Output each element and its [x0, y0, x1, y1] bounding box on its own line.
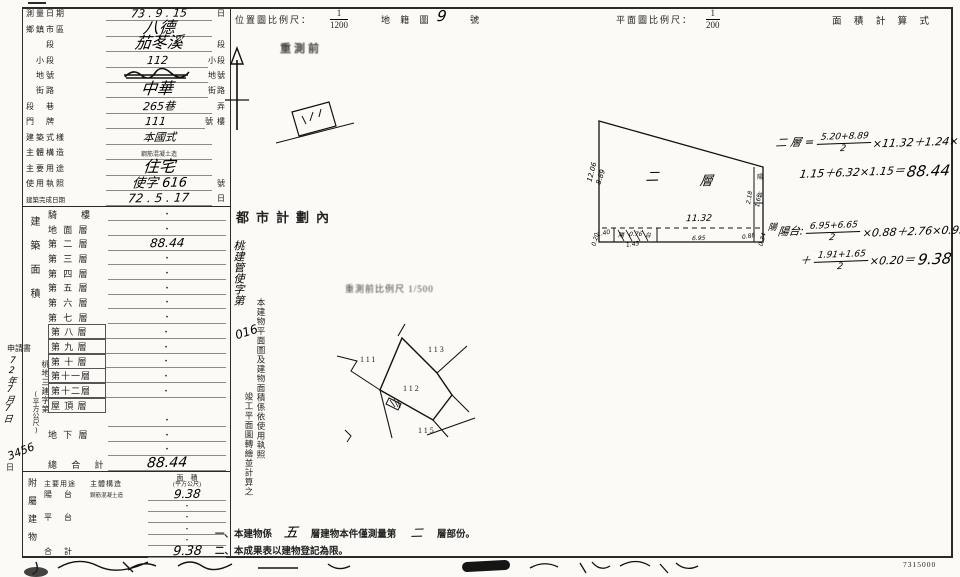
- row-house-number: 門 牌111號 樓: [26, 114, 226, 129]
- row-value: 使字 616: [131, 177, 187, 191]
- border-left: [22, 7, 23, 556]
- row-structure: 主體構造鋼筋混凝土造: [26, 145, 226, 160]
- floor-row: 第 三 層·: [48, 251, 226, 266]
- plan-dim-b4: 0.76: [629, 231, 643, 238]
- row-label: 建築式樣: [26, 132, 106, 143]
- annex-header-struct: 主體構造: [90, 479, 148, 489]
- building-area-section-label: 建築面積: [26, 216, 41, 396]
- row-label: 建築完成日期: [26, 194, 106, 204]
- row-value: 中華: [140, 84, 173, 95]
- row-value: 112: [146, 53, 168, 66]
- calc-line-2: 1.15＋6.32×1.15＝ 88.44: [800, 162, 950, 180]
- row-parcel-number: 地號地號: [26, 68, 226, 83]
- floor-row: 第十二層·: [48, 383, 226, 398]
- cadastral-sheet-number: 9: [436, 7, 447, 25]
- sketch-scale-stamp: 重測前比例尺 1/500: [345, 282, 434, 295]
- footer-ink-blob: [462, 560, 510, 572]
- area-calc-title: 面 積 計 算 式: [832, 13, 934, 27]
- received-date-handwriting: 72年7月7日: [0, 356, 20, 456]
- calc-fraction-2: 6.95+6.652: [805, 221, 862, 244]
- calc-line-1: 二 層 = 5.20+8.892 ×11.32＋1.24×: [776, 133, 959, 154]
- annex-header-use: 主要用途: [44, 479, 90, 489]
- cadastral-map-label: 地 籍 圖: [381, 13, 433, 26]
- plan-dim-width: 11.32: [685, 214, 712, 224]
- row-label: 街路: [26, 85, 106, 96]
- floor-row-blank: ·: [48, 413, 226, 428]
- floor-row: 第 八 層·: [48, 325, 226, 340]
- plan-scale-fraction: 1 200: [706, 9, 720, 30]
- row-value: 住宅: [142, 161, 175, 172]
- row-label: 主體構造: [26, 147, 106, 158]
- location-key-sketch: [272, 95, 360, 150]
- parcel-label-112: 112: [403, 384, 421, 393]
- area-unit-label: (平方公尺): [31, 390, 41, 452]
- urban-planning-stamp: 都市計劃內: [236, 207, 336, 226]
- row-subsection: 小段112小段: [26, 52, 226, 67]
- scale-denominator: 1200: [330, 20, 348, 30]
- row-label: 段 巷: [26, 101, 106, 112]
- row-value: 八德: [142, 22, 175, 33]
- row-unit: 日: [212, 8, 226, 19]
- annex-section-label: 附屬建物: [26, 478, 39, 558]
- north-arrow: [222, 48, 252, 136]
- border-right: [951, 7, 953, 557]
- calc-line-3: 陽台: 6.95+6.652 ×0.88＋2.76×0.95: [778, 222, 960, 243]
- row-value: 72 . 5 . 17: [128, 192, 191, 206]
- footer-signature-scribbles: [28, 558, 448, 576]
- calc-fraction-3: 1.91+1.652: [812, 250, 869, 273]
- row-value: 265巷: [142, 100, 175, 114]
- floor-row: 第 四 層·: [48, 266, 226, 281]
- row-value: 茄苳溪: [134, 38, 183, 49]
- row-value: 本國式: [142, 130, 176, 144]
- row-completion-date: 建築完成日期72 . 5 . 17日: [26, 191, 226, 206]
- plan-dim-b7: 6.95: [692, 235, 706, 242]
- note-measured-floor-handwriting: 二: [398, 524, 436, 542]
- note-floors-handwriting: 五: [273, 522, 309, 543]
- print-code: 7315000: [903, 560, 936, 569]
- floor-row: 第十一層·: [48, 369, 226, 384]
- row-street: 街路中華街路: [26, 83, 226, 98]
- annex-row-total: 合 計9.38: [44, 546, 226, 557]
- row-unit: 號: [212, 178, 226, 189]
- floor-row-roof: 屋 頂 層: [48, 398, 226, 413]
- floor-row: 第 七 層·: [48, 310, 226, 325]
- row-label: 段: [26, 39, 106, 50]
- floor-row-second-floor: 第 二 層88.44: [48, 236, 226, 251]
- floor-row-basement: 地 下 層·: [48, 427, 226, 442]
- parcel-label-111: 111: [360, 355, 377, 364]
- floor-row: 第 九 層·: [48, 339, 226, 354]
- plan-balcony-char-2: 台: [645, 230, 651, 239]
- calc-line-4: ＋ 1.91+1.652 ×0.20＝ 9.38: [800, 250, 951, 272]
- calc-result-balcony: 9.38: [916, 249, 952, 268]
- building-hatch-mark: [386, 398, 401, 410]
- floor-row: 第 五 層·: [48, 280, 226, 295]
- floor-area-table: 騎 樓· 地 面 層· 第 二 層88.44 第 三 層· 第 四 層· 第 五…: [48, 207, 226, 471]
- building-info-table: 測量日期73 . 9 . 15日 鄉鎮市區八德 段茄苳溪段 小段112小段 地號…: [26, 6, 226, 207]
- calc-fraction-1: 5.20+8.892: [815, 132, 872, 155]
- border-top-mark: [28, 2, 46, 4]
- plan-right-balcony-char-1: 陽: [757, 172, 763, 181]
- plan-right-balcony-char-2: 台: [757, 190, 763, 199]
- plan-scale-denominator: 200: [706, 20, 720, 30]
- presurvey-stamp: 重測前: [280, 40, 322, 56]
- row-lane: 段 巷265巷弄: [26, 99, 226, 114]
- row-unit: 日: [212, 193, 226, 204]
- annex-table: 主要用途 主體構造 面 積 (平方公尺) 陽 台鋼筋混凝土造9.38 · 平 台…: [44, 472, 226, 557]
- annex-row-balcony: 陽 台鋼筋混凝土造9.38: [44, 489, 226, 500]
- location-scale-label: 位置圖比例尺：: [235, 13, 312, 26]
- annex-row-platform: 平 台·: [44, 512, 226, 523]
- floor-row-total: 總 合 計88.44: [48, 457, 226, 472]
- note-column-1: 本建物平面圖及建物面積係依使用執照: [255, 298, 267, 483]
- row-section: 段茄苳溪段: [26, 37, 226, 52]
- plan-scale-label: 平面圖比例尺：: [616, 13, 693, 26]
- row-value: 111: [144, 115, 166, 128]
- cadastral-sketch: [335, 312, 550, 472]
- annex-row: ·: [44, 523, 226, 534]
- footer-scribbles-2: [520, 558, 740, 576]
- row-label: 小段: [26, 55, 106, 66]
- scale-numerator: 1: [330, 9, 348, 20]
- note-line-1: 一、本建物係 五 層建物本件僅測量第 二 層部份。: [215, 522, 475, 542]
- floor-row: 第 六 層·: [48, 295, 226, 310]
- day-label: 日: [6, 462, 14, 473]
- permit-number-handwriting: 桃建管使字第: [230, 240, 246, 332]
- cadastral-unit: 號: [470, 13, 479, 26]
- row-label: 鄉鎮市區: [26, 24, 106, 35]
- row-main-use: 主要用途住宅: [26, 160, 226, 175]
- row-township: 鄉鎮市區八德: [26, 21, 226, 36]
- plan-room-label-a: 二: [645, 166, 660, 185]
- row-building-style: 建築式樣本國式: [26, 130, 226, 145]
- parcel-label-115: 115: [418, 426, 436, 435]
- survey-document: 位置圖比例尺： 1 1200 地 籍 圖 9 號 平面圖比例尺： 1 200 面…: [0, 0, 960, 577]
- location-scale-fraction: 1 1200: [330, 9, 348, 30]
- plan-scale-numerator: 1: [706, 9, 720, 20]
- plan-balcony-annotation: 陽: [767, 220, 777, 233]
- row-label: 門 牌: [26, 116, 106, 127]
- row-survey-date: 測量日期73 . 9 . 15日: [26, 6, 226, 21]
- annex-row: ·: [44, 500, 226, 511]
- note-line-2: 二、本成果表以建物登記為限。: [215, 543, 348, 557]
- calc-result-floor2: 88.44: [906, 161, 952, 180]
- row-label: 主要用途: [26, 163, 106, 174]
- floor-row: 第 十 層·: [48, 354, 226, 369]
- plan-balcony-char-1: 陽: [618, 230, 624, 239]
- floor-row: 地 面 層·: [48, 222, 226, 237]
- row-label: 測量日期: [26, 8, 106, 19]
- row-use-license: 使用執照使字 616號: [26, 176, 226, 191]
- parcel-label-113: 113: [428, 345, 446, 354]
- floor-row: 騎 樓·: [48, 207, 226, 222]
- row-label: 地號: [26, 70, 106, 81]
- note-column-2: 竣工平面圖轉繪並計算之: [243, 392, 255, 510]
- floor-row-blank: ·: [48, 442, 226, 457]
- row-label: 使用執照: [26, 178, 106, 189]
- plan-room-label-b: 層: [699, 170, 714, 189]
